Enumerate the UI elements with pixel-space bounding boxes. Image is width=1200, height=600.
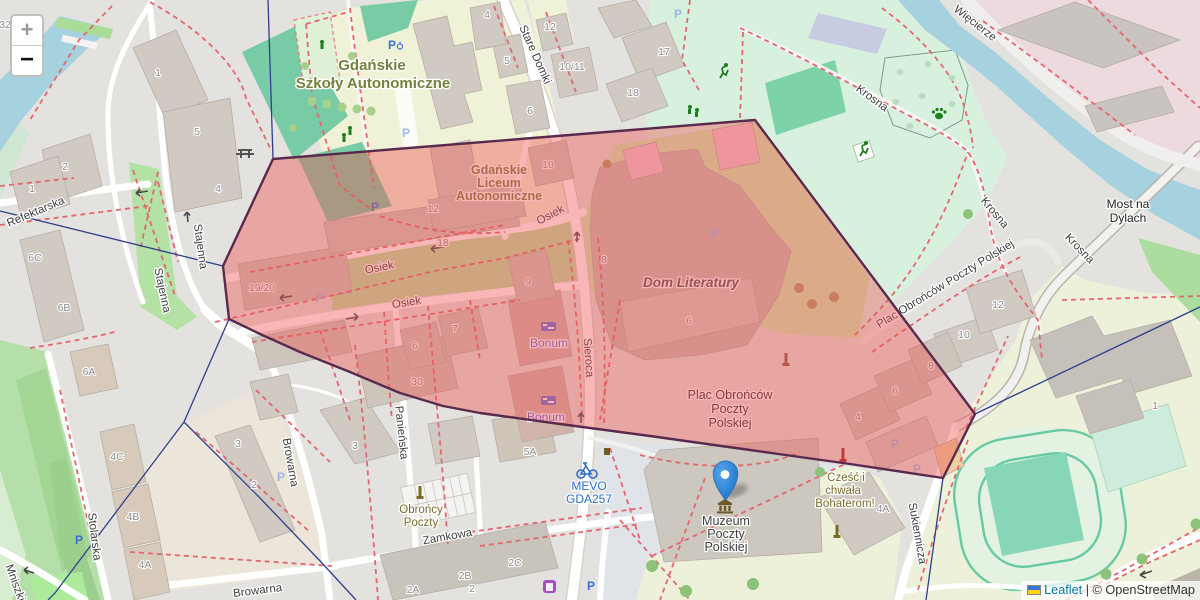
svg-text:Dylach: Dylach bbox=[1110, 211, 1147, 225]
svg-text:P: P bbox=[277, 470, 285, 484]
svg-text:4B: 4B bbox=[127, 511, 140, 523]
svg-text:Muzeum: Muzeum bbox=[702, 514, 750, 528]
svg-text:P: P bbox=[388, 38, 396, 52]
svg-text:4: 4 bbox=[484, 9, 490, 21]
svg-text:4A: 4A bbox=[877, 503, 890, 515]
svg-text:2B: 2B bbox=[459, 570, 472, 582]
svg-text:Gdańskie: Gdańskie bbox=[338, 57, 406, 74]
svg-text:chwała: chwała bbox=[825, 485, 861, 497]
svg-text:17: 17 bbox=[658, 46, 670, 58]
svg-text:4A: 4A bbox=[139, 559, 152, 571]
svg-text:5A: 5A bbox=[524, 446, 537, 458]
svg-text:Szkoły Autonomiczne: Szkoły Autonomiczne bbox=[296, 75, 450, 92]
svg-text:2C: 2C bbox=[508, 557, 522, 569]
svg-text:18: 18 bbox=[627, 87, 639, 99]
svg-text:Most na: Most na bbox=[1107, 197, 1150, 211]
svg-text:5: 5 bbox=[504, 55, 510, 67]
svg-text:10/11: 10/11 bbox=[559, 61, 585, 73]
svg-text:2A: 2A bbox=[407, 584, 420, 596]
svg-text:12: 12 bbox=[544, 21, 556, 33]
svg-text:12: 12 bbox=[992, 299, 1004, 311]
svg-text:1: 1 bbox=[29, 183, 35, 195]
svg-text:2: 2 bbox=[469, 583, 475, 595]
svg-text:Bohaterom!: Bohaterom! bbox=[815, 498, 874, 510]
svg-text:2: 2 bbox=[251, 479, 257, 491]
svg-text:P: P bbox=[674, 7, 682, 21]
svg-text:3: 3 bbox=[235, 438, 241, 450]
svg-text:Cześć i: Cześć i bbox=[827, 472, 865, 484]
svg-text:Polskiej: Polskiej bbox=[704, 540, 747, 554]
svg-text:1: 1 bbox=[155, 67, 161, 79]
svg-text:6B: 6B bbox=[58, 302, 71, 314]
svg-text:P: P bbox=[402, 126, 410, 140]
svg-text:4C: 4C bbox=[110, 451, 124, 463]
svg-text:MEVO: MEVO bbox=[571, 479, 606, 493]
svg-text:GDA257: GDA257 bbox=[566, 492, 612, 506]
svg-text:6C: 6C bbox=[28, 252, 42, 264]
svg-text:Poczty: Poczty bbox=[404, 517, 439, 529]
svg-text:4: 4 bbox=[215, 183, 221, 195]
svg-text:P: P bbox=[587, 579, 595, 593]
svg-text:5: 5 bbox=[194, 126, 200, 138]
svg-text:Obrońcy: Obrońcy bbox=[399, 504, 443, 516]
svg-text:1: 1 bbox=[1152, 400, 1158, 412]
svg-text:10: 10 bbox=[958, 329, 970, 341]
svg-text:Poczty: Poczty bbox=[707, 527, 745, 541]
svg-text:6: 6 bbox=[527, 105, 533, 117]
svg-text:2: 2 bbox=[62, 161, 68, 173]
svg-text:3: 3 bbox=[352, 440, 358, 452]
svg-text:P: P bbox=[75, 533, 83, 547]
svg-text:6A: 6A bbox=[83, 366, 96, 378]
